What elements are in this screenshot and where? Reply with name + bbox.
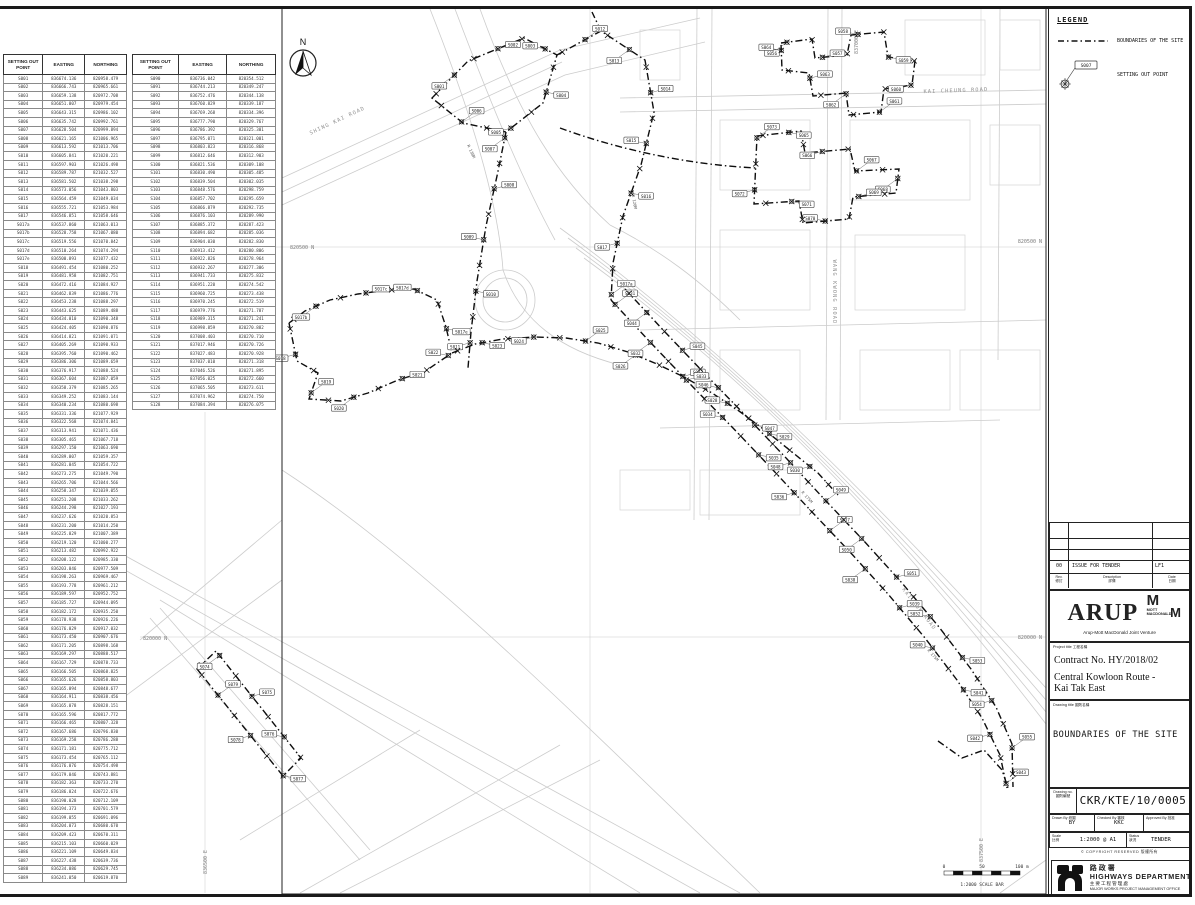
svg-text:S028: S028 [707,398,718,403]
svg-text:S007: S007 [1081,63,1092,69]
table-row: S045836251.208821033.262 [4,496,127,505]
table-row: S056836189.597820952.752 [4,590,127,599]
table-row: S017e836500.893821077.432 [4,255,127,264]
setting-out-point-marker [787,448,792,453]
table-row: S128837084.394820276.075 [133,401,276,410]
table-row: S020836472.416821084.927 [4,281,127,290]
setting-out-point-label: S060 [889,85,911,92]
table-row: S022836453.238821088.297 [4,298,127,307]
setting-out-point-label: S014 [651,85,673,92]
revision-number: 00 [1050,561,1069,573]
table-row: S041836281.045821054.722 [4,461,127,470]
svg-text:S066: S066 [802,153,813,158]
setting-out-point-marker [1001,721,1006,726]
svg-text:0: 0 [943,864,946,870]
setting-out-point-label: S020 [331,397,353,411]
table-row: S124837046.526820271.895 [133,367,276,376]
highways-department-logo [1056,864,1085,892]
setting-out-point-label: S009 [461,233,483,239]
svg-text:S022: S022 [428,350,439,355]
revision-header-row: Rev.修訂 Description詳情 Date日期 [1050,574,1189,588]
revision-right: LF1 [1153,561,1189,573]
table-row: S081836194.373820701.579 [4,805,127,814]
svg-text:S036: S036 [774,495,785,500]
mott-macdonald-m2: M [1170,605,1181,620]
col-header-northing: NORTHING [227,55,276,75]
setting-out-point-label: S049 [826,486,848,500]
drawing-title-block: Drawing title 圖則名稱 BOUNDARIES OF THE SIT… [1049,700,1190,788]
table-row: S101836830.490820305.485 [133,169,276,178]
office-name-en: MAJOR WORKS PROJECT MANAGEMENT OFFICE [1090,887,1190,891]
svg-text:S005: S005 [491,130,502,135]
svg-text:S056: S056 [767,51,778,56]
svg-text:S054: S054 [972,702,983,707]
table-row: S096836786.392820325.301 [133,126,276,135]
table-row: S014836573.056821043.803 [4,186,127,195]
north-label: N [300,37,307,47]
people-row: Drawn By 繪圖 BY Checked By 審核 KKC Approve… [1049,814,1190,832]
table-row: S003836659.138820972.708 [4,92,127,101]
setting-out-point-label: S072 [732,190,754,197]
status-value: TENDER [1151,833,1190,847]
svg-text:S077: S077 [293,777,304,782]
svg-text:S046: S046 [698,382,709,387]
svg-text:S024: S024 [514,339,525,344]
table-row: S011836597.903821026.498 [4,160,127,169]
svg-text:S055: S055 [1022,735,1033,740]
setting-out-point-marker [529,109,534,114]
setting-out-point-label: S077 [283,775,305,781]
svg-text:S004: S004 [556,93,567,98]
svg-text:S017b: S017b [295,315,308,320]
table-row: S054836198.263820969.467 [4,573,127,582]
table-row: S123837037.010820271.318 [133,358,276,367]
table-row: S038836305.465821067.718 [4,435,127,444]
svg-text:S001: S001 [434,84,445,89]
revision-table: 00 ISSUE FOR TENDER LF1 Rev.修訂 Descripti… [1049,522,1190,590]
table-row: S109836904.030820282.830 [133,238,276,247]
table-row: S024836434.010821090.348 [4,315,127,324]
setting-out-point-marker [774,471,779,476]
setting-out-point-marker [914,625,919,630]
table-row: S017c836519.556821070.842 [4,238,127,247]
svg-text:S041: S041 [973,691,984,696]
table-row: S019836481.958821082.751 [4,272,127,281]
setting-out-point-label: S025 [586,327,608,341]
svg-text:S074: S074 [200,664,211,669]
svg-text:S043: S043 [1016,770,1027,775]
table-row: S065836166.505820868.825 [4,667,127,676]
table-row: S079836186.024820722.676 [4,788,127,797]
table-row: S106836876.103820289.990 [133,212,276,221]
setting-out-point-marker [877,555,882,560]
revision-row-00: 00 ISSUE FOR TENDER LF1 [1050,561,1189,574]
checked-by: KKC [1095,820,1143,826]
table-row: S049836225.029821007.389 [4,530,127,539]
setting-out-point-label: S010 [476,291,498,297]
table-row: S126837065.505820273.611 [133,384,276,393]
setting-out-point-label: S039 [900,600,922,607]
setting-out-point-marker [746,416,751,421]
setting-out-point-label: S028 [705,397,727,403]
svg-text:S012: S012 [595,26,606,31]
setting-out-point-label: S026 [613,355,635,369]
svg-text:S044: S044 [627,321,638,326]
table-row: S013836581.502821038.298 [4,178,127,187]
table-row: S100836821.536820309.108 [133,160,276,169]
svg-text:S070: S070 [805,216,816,221]
table-row: S090836736.042820354.512 [133,75,276,84]
table-row: S040836289.007821059.357 [4,453,127,462]
svg-text:S029: S029 [779,434,790,439]
setting-out-point-marker [738,433,743,438]
svg-text:50: 50 [979,864,985,870]
table-row: S069836165.078820828.151 [4,702,127,711]
table-row: S036836322.568821074.841 [4,418,127,427]
project-block: Project title 工程名稱 Contract No. HY/2018/… [1049,642,1190,700]
svg-text:S060: S060 [891,87,902,92]
setting-out-point-label: S005 [489,128,511,135]
svg-text:S061: S061 [889,99,900,104]
svg-text:S050: S050 [842,547,853,552]
setting-out-point-label: S033 [686,373,708,380]
svg-text:S002: S002 [508,42,519,47]
radius-label: R 130M [466,144,477,160]
svg-text:S038: S038 [845,578,856,583]
table-row: S120837008.403820270.710 [133,332,276,341]
firm-block: ARUP M MOTTMACDONALD M Arup-Mott MacDona… [1049,590,1190,642]
table-row: S119836998.859820270.882 [133,324,276,333]
table-row: S086836221.109820649.834 [4,848,127,857]
table-row: S088836234.086820629.745 [4,865,127,874]
setting-out-point-marker [946,666,951,671]
drawing-number-block: Drawing no.圖則編號 CKR/KTE/10/0005 [1049,788,1190,814]
drawing-number: CKR/KTE/10/0005 [1077,789,1189,813]
table-row: S064836167.729820878.733 [4,659,127,668]
table-row: S104836857.702820295.659 [133,195,276,204]
table-row: S075836173.454820765.112 [4,753,127,762]
table-row: S115836960.725820273.438 [133,289,276,298]
table-row: S026836414.821821091.071 [4,332,127,341]
table-row: S058836182.172820935.250 [4,607,127,616]
setting-out-point-marker [486,212,491,217]
table-row: S095836777.790820329.767 [133,117,276,126]
table-row: S061836173.450820907.676 [4,633,127,642]
legend: LEGEND BOUNDARIES OF THE SITE S007 SETTI… [1057,16,1190,92]
svg-text:S016: S016 [641,194,652,199]
road-label: WANG KWONG ROAD [831,260,837,325]
table-row: S074836171.181820775.712 [4,745,127,754]
svg-text:S026: S026 [615,364,626,369]
table-row: S066836165.626820858.803 [4,676,127,685]
legend-item-boundary: BOUNDARIES OF THE SITE [1057,38,1190,44]
svg-text:S045: S045 [692,344,703,349]
svg-text:S064: S064 [761,45,772,50]
radius-label: R 120M [631,194,639,210]
table-row: S034836340.234821080.698 [4,401,127,410]
sheet-border-top [0,6,1191,9]
grid-label: 820500 N [290,245,314,251]
table-row: S110836913.412820280.806 [133,246,276,255]
table-row: S072836167.686820796.830 [4,728,127,737]
setting-out-point-marker [975,676,980,681]
table-row: S030836376.917821088.524 [4,367,127,376]
svg-text:S017e: S017e [455,329,468,334]
setting-out-point-label: S017c [366,286,390,293]
road-label: SHING KAI ROAD [309,106,366,137]
joint-venture-label: Arup-Mott MacDonald Joint Venture [1050,630,1189,635]
svg-text:S020: S020 [334,406,345,411]
setting-out-point-label: S037 [830,516,852,530]
table-row: S039836297.150821063.690 [4,444,127,453]
col-header-easting: EASTING [43,55,85,75]
svg-text:S017a: S017a [620,281,633,286]
table-row: S010836605.841821020.221 [4,152,127,161]
table-row: S116836970.245820272.519 [133,298,276,307]
contract-number: Contract No. HY/2018/02 [1050,655,1189,666]
setting-out-point-label: S054 [969,701,991,708]
svg-text:S078: S078 [231,737,242,742]
setting-out-point-label: S044 [624,312,646,326]
table-row: S122837027.483820270.928 [133,350,276,359]
setting-out-point-label: S059 [889,57,911,63]
table-row: S097836795.071820321.001 [133,135,276,144]
setting-out-point-marker [975,709,980,714]
svg-text:S017d: S017d [396,285,409,290]
svg-text:S010: S010 [486,292,497,297]
table-row: S063836169.297820888.517 [4,650,127,659]
svg-text:S072: S072 [735,192,746,197]
table-row: S099836812.646820312.903 [133,152,276,161]
table-row: S047836237.626821020.853 [4,513,127,522]
table-row: S009836613.592821013.706 [4,143,127,152]
svg-text:S019: S019 [321,380,332,385]
grid-label: 836500 E [203,850,209,874]
table-row: S091836744.213820349.247 [133,83,276,92]
setting-out-point-label: S063 [810,71,832,78]
svg-text:S021: S021 [412,372,423,377]
setting-out-point-label: S075 [252,689,274,696]
setting-out-point-label: S031 [615,290,637,304]
setting-out-point-marker [657,363,662,368]
setting-out-point-label: S023 [482,342,504,348]
svg-text:S059: S059 [898,58,909,63]
setting-out-point-label: S051 [897,570,919,577]
table-row: S004836651.007820979.454 [4,100,127,109]
setting-out-point-label: S032 [628,342,650,356]
svg-text:S033: S033 [696,374,707,379]
svg-text:S017: S017 [597,245,608,250]
table-row: S060836176.029820917.032 [4,625,127,634]
svg-text:S009: S009 [464,234,475,239]
table-row: S113836941.733820275.832 [133,272,276,281]
svg-text:S035: S035 [769,456,780,461]
svg-text:S053: S053 [972,658,983,663]
drawn-by: BY [1050,820,1094,826]
svg-text:S003: S003 [525,44,536,49]
table-row: S017a836537.860821063.013 [4,221,127,230]
table-row: S093836760.829820339.187 [133,100,276,109]
svg-text:S067: S067 [867,158,878,163]
table-row: S071836166.465820807.328 [4,719,127,728]
table-row: S114836951.220820274.542 [133,281,276,290]
table-row: S082836199.055820691.096 [4,814,127,823]
table-row: S127837074.962820274.750 [133,392,276,401]
table-row: S078836182.363820733.270 [4,779,127,788]
highways-department-block: 路政署 HIGHWAYS DEPARTMENT 主要工程管理處 MAJOR WO… [1051,860,1190,894]
setting-out-point-label: S004 [546,92,568,98]
legend-boundary-label: BOUNDARIES OF THE SITE [1117,38,1183,44]
map-frame [282,8,1046,894]
setting-out-point-label: S050 [839,539,861,553]
sheet-border-right [1189,6,1192,897]
setting-out-point-label: S057 [822,50,844,57]
table-row: S102836839.504820302.035 [133,178,276,187]
setting-out-point-label: S071 [792,201,814,207]
setting-out-table-2: SETTING OUT POINT EASTING NORTHING S0908… [132,54,276,410]
svg-text:S023: S023 [492,343,503,348]
svg-text:1:2000 SCALE BAR: 1:2000 SCALE BAR [960,882,1004,888]
table-row: S094836769.268820334.396 [133,109,276,118]
table-row: S031836367.604821087.059 [4,375,127,384]
sheet-border-bottom [0,894,1191,897]
setting-out-point-marker [666,359,671,364]
svg-text:S032: S032 [630,351,641,356]
setting-out-point-marker [734,404,739,409]
col-header-setting-out-point: SETTING OUT POINT [4,55,43,75]
svg-text:S076: S076 [264,732,275,737]
mott-macdonald-logo: M MOTTMACDONALD [1147,593,1172,616]
setting-out-point-label: S017e [446,328,470,334]
svg-text:S071: S071 [802,202,813,207]
setting-out-point-label: S017 [595,243,617,250]
table-row: S057836185.727820944.095 [4,599,127,608]
table-row: S068836164.911820838.456 [4,693,127,702]
setting-out-point-marker [637,166,642,171]
setting-out-point-label: S038 [843,569,865,583]
legend-title: LEGEND [1057,16,1190,24]
table-row: S035836331.336821077.929 [4,410,127,419]
setting-out-point-symbol: S007 [1057,58,1109,92]
svg-text:S018: S018 [276,356,287,361]
setting-out-point-label: S036 [772,493,794,500]
table-row: S055836193.778820961.212 [4,582,127,591]
table-row: S059836178.938820926.226 [4,616,127,625]
svg-text:S013: S013 [609,58,620,63]
svg-text:S073: S073 [767,125,778,130]
svg-text:S065: S065 [799,133,810,138]
setting-out-point-marker [880,585,885,590]
setting-out-point-label: S015 [624,137,646,143]
table-row: S032836358.379821085.265 [4,384,127,393]
table-row: S006836635.742820992.761 [4,117,127,126]
table-row: S007836628.504820999.894 [4,126,127,135]
setting-out-point-label: S064 [759,44,781,50]
table-row: S025836424.405821090.876 [4,324,127,333]
col-header-northing: NORTHING [85,55,127,75]
table-row: S012836589.787821032.527 [4,169,127,178]
revision-description: ISSUE FOR TENDER [1069,561,1153,573]
svg-text:S062: S062 [826,102,837,107]
svg-text:S008: S008 [504,182,515,187]
svg-text:S069: S069 [869,190,880,195]
table-row: S028836395.760821090.462 [4,350,127,359]
setting-out-point-label: S013 [607,50,629,64]
setting-out-point-label: S045 [682,343,704,350]
table-row: S042836273.275821049.790 [4,470,127,479]
setting-out-point-label: S062 [824,94,846,108]
table-row: S051836213.482820992.922 [4,547,127,556]
boundary-line-sample [1057,38,1109,44]
svg-text:100 m: 100 m [1015,864,1029,870]
table-row: S001836674.136820958.479 [4,75,127,84]
table-row: S077836179.046820743.881 [4,771,127,780]
svg-text:S057: S057 [832,51,843,56]
table-row: S015836564.459821049.034 [4,195,127,204]
setting-out-point-marker [806,479,811,484]
svg-text:S052: S052 [910,611,921,616]
svg-text:S006: S006 [472,109,483,114]
table-row: S053836203.046820977.509 [4,564,127,573]
setting-out-point-label: S001 [432,75,454,89]
setting-out-point-marker [232,713,237,718]
table-row: S098836803.823820316.868 [133,143,276,152]
svg-text:S034: S034 [703,412,714,417]
setting-out-point-label: S018 [273,354,295,361]
table-row: S085836215.103820660.029 [4,839,127,848]
table-row: S118836989.315820271.241 [133,315,276,324]
svg-text:S017c: S017c [375,287,388,292]
table-row: S048836231.200821014.250 [4,521,127,530]
setting-out-point-label: S042 [968,734,990,741]
table-row: S017b836528.758821067.080 [4,229,127,238]
setting-out-point-label: S011 [448,343,470,350]
table-row: S073836169.258820786.288 [4,736,127,745]
table-row: S005836643.315820986.102 [4,109,127,118]
setting-out-point-label: S053 [962,657,984,663]
table-row: S002836666.743820965.661 [4,83,127,92]
setting-out-point-label: S022 [426,349,448,355]
scale-bar: 0 50 100 m 1:2000 SCALE BAR [943,864,1029,888]
table-row: S021836462.839821086.776 [4,289,127,298]
setting-out-point-marker [266,714,271,719]
svg-text:S058: S058 [838,29,849,34]
table-row: S105836866.879820292.735 [133,203,276,212]
arup-logo: ARUP [1068,600,1139,627]
setting-out-point-label: S078 [228,736,250,743]
setting-out-point-marker [424,368,429,373]
table-row: S017d836510.264821074.294 [4,246,127,255]
north-arrow: N [290,37,316,76]
col-header-easting: EASTING [178,55,227,75]
setting-out-point-label: S066 [800,151,822,158]
setting-out-point-marker [770,441,775,446]
col-header-setting-out-point: SETTING OUT POINT [133,55,179,75]
setting-out-point-label: S070 [803,215,825,221]
setting-out-point-label: S069 [859,189,881,196]
table-row: S076836176.076820754.498 [4,762,127,771]
svg-text:S040: S040 [913,643,924,648]
drawing-title: BOUNDARIES OF THE SITE [1050,708,1189,740]
setting-out-point-marker [264,753,269,758]
setting-out-point-label: S008 [494,181,516,188]
svg-text:S075: S075 [262,690,273,695]
grid-label: 820000 N [1018,635,1042,641]
setting-out-point-label: S030 [787,466,809,473]
table-row: S111836922.826820278.964 [133,255,276,264]
table-row: S121837017.946820270.726 [133,341,276,350]
table-row: S016836555.721821053.984 [4,203,127,212]
